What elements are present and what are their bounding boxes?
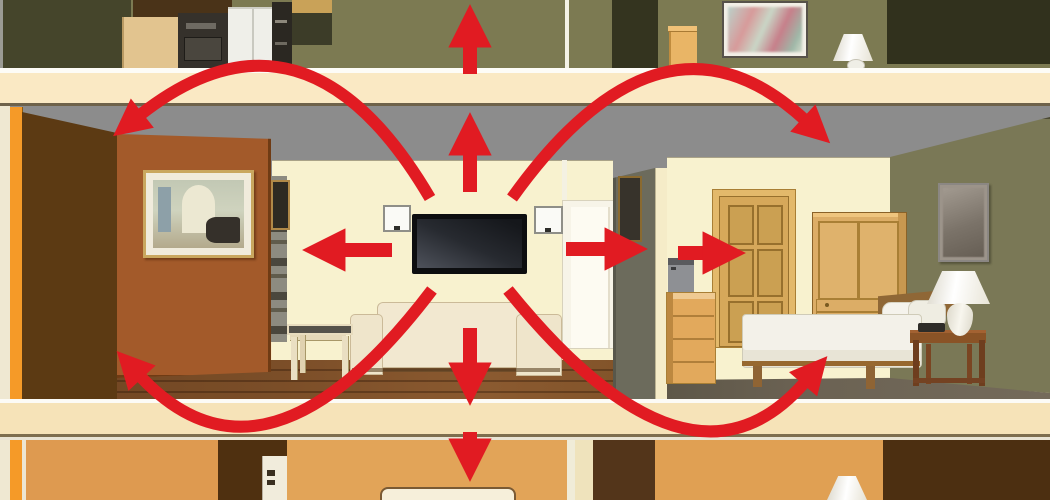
lower-white-strip — [567, 440, 575, 500]
kitchen-cabinet-shadow — [292, 13, 332, 45]
upper-framed-picture — [722, 1, 808, 58]
upper-table-lamp-shade — [833, 34, 873, 61]
open-doorway — [562, 200, 616, 349]
side-table-leg — [300, 335, 306, 373]
upper-band-bottom-line — [0, 103, 1050, 106]
lower-floor-band — [0, 403, 1050, 434]
house-cutaway-illustration — [0, 0, 1050, 500]
dresser-seam — [673, 338, 714, 340]
bed-leg — [866, 366, 875, 389]
lower-dark-brown-doorway — [593, 440, 655, 500]
kitchen-oven-column — [272, 2, 292, 70]
bedroom-framed-picture — [938, 183, 989, 262]
dresser-seam — [673, 315, 714, 317]
armoire-knob — [825, 303, 829, 307]
sofa-floor-shadow — [352, 368, 560, 372]
door-panel — [757, 249, 783, 297]
lower-white-door — [262, 456, 288, 500]
nightstand — [910, 330, 986, 388]
upper-floor-strip — [0, 0, 1050, 70]
right-speaker — [534, 206, 563, 234]
lower-cream-edge — [0, 440, 10, 500]
door-mark — [267, 470, 275, 476]
lower-floor-strip — [0, 440, 1050, 500]
speaker-notch — [545, 228, 551, 232]
side-table — [287, 324, 353, 380]
side-table-apron — [290, 335, 346, 341]
upper-picture-art — [728, 7, 802, 52]
kitchen-upper-cabinet — [292, 0, 332, 13]
oven-door — [184, 37, 222, 61]
lower-bed-headboard — [380, 487, 516, 500]
side-table-top — [287, 324, 353, 335]
open-doorway-trim-top — [562, 160, 567, 204]
door-panel — [728, 205, 754, 245]
lower-orange-cut-edge — [10, 440, 22, 500]
bed-leg — [753, 366, 762, 387]
side-table-leg — [342, 336, 349, 379]
left-cream-edge — [0, 106, 10, 402]
wall-mounted-tv — [412, 214, 527, 274]
door-panel — [757, 205, 783, 245]
bed-rail — [742, 361, 920, 366]
nightstand-phone — [918, 323, 945, 332]
picture-piano-motif — [206, 217, 241, 243]
kitchen-cabinet-tan — [122, 17, 180, 70]
sofa-armrest-left — [350, 314, 383, 375]
bedroom-dresser — [666, 292, 716, 384]
left-speaker — [383, 205, 411, 232]
door-mark — [267, 480, 275, 485]
living-picture-art — [153, 180, 244, 248]
tv-button — [671, 267, 676, 270]
lower-wall-seam — [22, 440, 26, 500]
upper-pedestal — [669, 30, 697, 70]
orange-cut-wall-edge — [10, 107, 23, 402]
tv-screen — [417, 219, 522, 268]
kitchen-fridge — [228, 7, 272, 72]
door-panel — [728, 249, 754, 297]
sofa-back — [377, 302, 522, 368]
lower-dark-room-right — [883, 440, 1050, 500]
kitchen-dark-wall — [3, 0, 131, 70]
side-table-leg — [291, 337, 298, 380]
upper-floor-band — [0, 73, 1050, 104]
oven-handle2 — [275, 42, 287, 45]
sofa-armrest-right — [516, 314, 562, 376]
fridge-seam — [252, 9, 254, 72]
lower-cream-strip — [575, 440, 593, 500]
doorway-opening — [571, 207, 610, 348]
bedroom-picture-art — [943, 188, 984, 257]
oven-handle — [275, 20, 287, 23]
upper-pedestal-top — [668, 26, 697, 32]
upper-dark-room-right — [887, 0, 1050, 64]
living-room-dark-side-wall — [22, 107, 117, 402]
bed-mattress — [742, 314, 922, 368]
bookshelf-top-frame — [271, 180, 290, 230]
armoire-door-left — [818, 221, 859, 300]
dresser-seam — [673, 361, 714, 363]
speaker-notch — [394, 226, 400, 230]
living-room-framed-picture — [143, 170, 254, 258]
armoire-door-right — [858, 221, 899, 300]
picture-curtain-motif — [158, 187, 171, 232]
upper-hall-door-edge — [565, 0, 569, 70]
range-panel — [186, 23, 216, 29]
kitchen-range — [178, 13, 230, 70]
nightstand-stretcher — [913, 378, 985, 383]
partition-small-picture — [618, 176, 642, 242]
upper-dark-doorway — [612, 0, 658, 70]
